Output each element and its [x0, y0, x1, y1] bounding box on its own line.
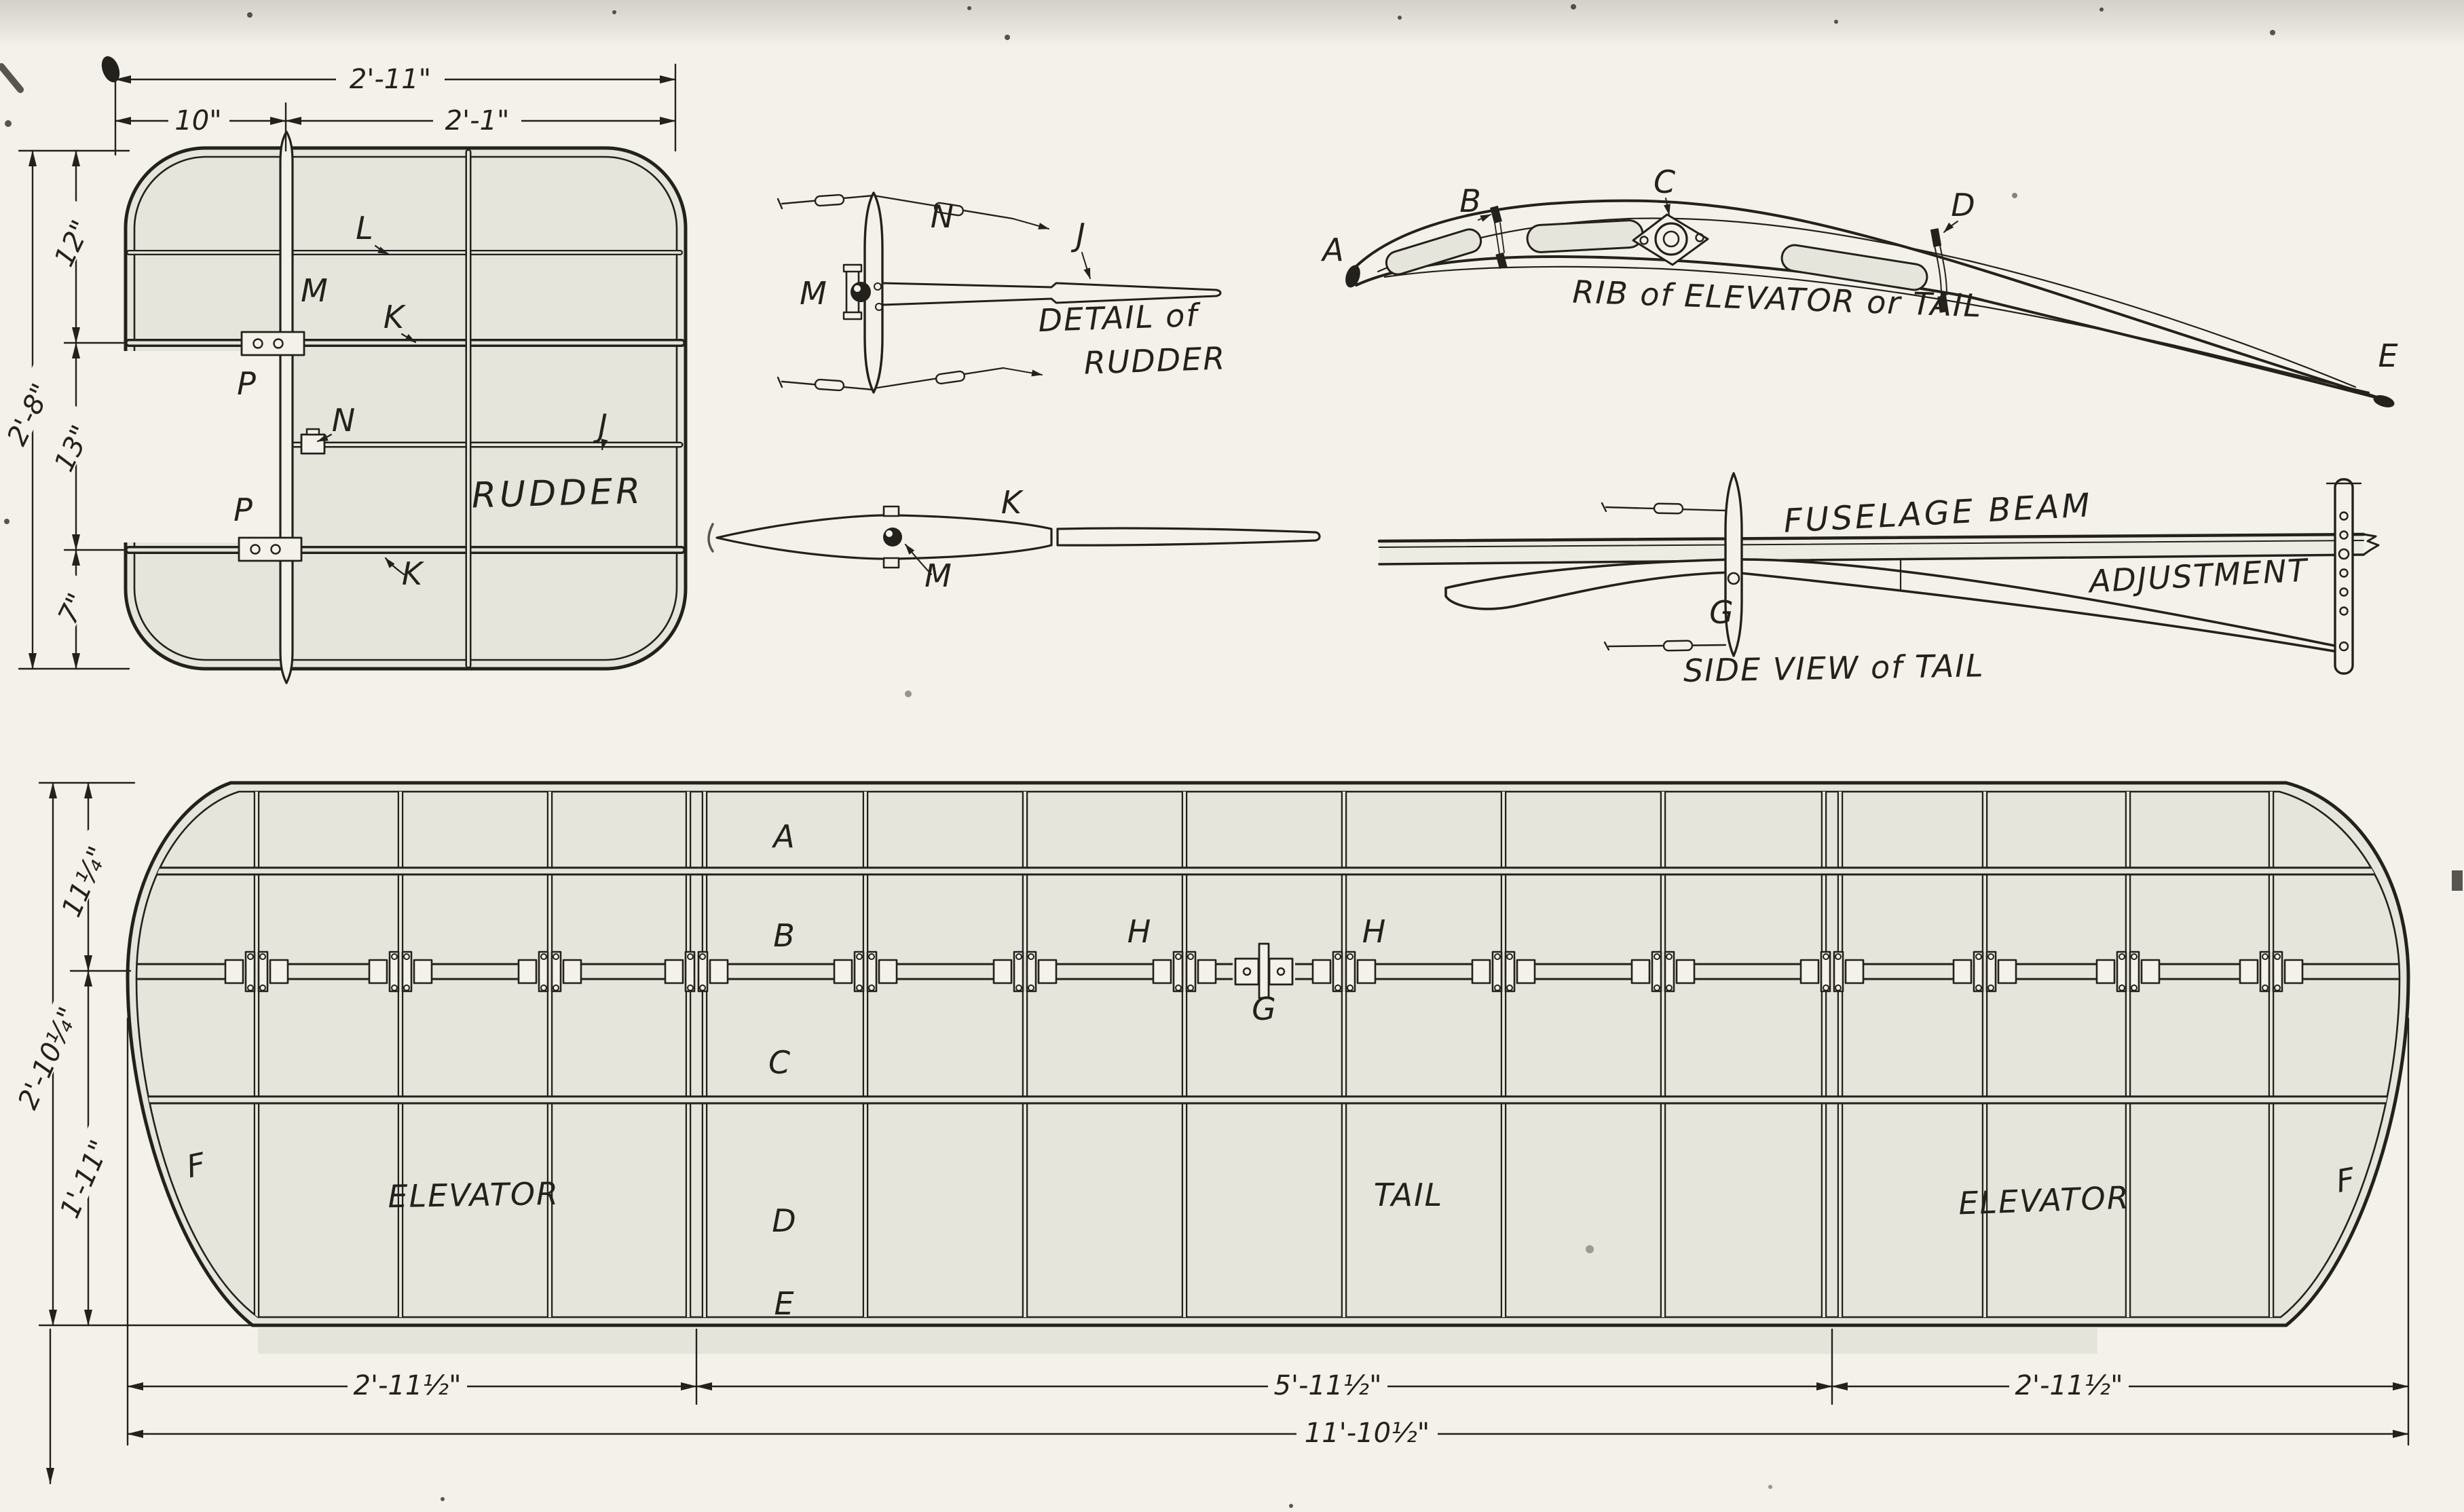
label-p-lower: P — [234, 492, 253, 528]
fitting-block-left — [1235, 959, 1258, 984]
strap-end — [1930, 228, 1941, 247]
dim-bottom-left: 2'-11½" — [354, 1370, 462, 1401]
hinge-plate-tab — [844, 312, 861, 319]
dim-top-left: 10" — [174, 105, 221, 136]
dim-bottom-center: 5'-11½" — [1274, 1370, 1382, 1401]
fitting-tab-bottom — [884, 558, 899, 568]
speck — [441, 1497, 445, 1501]
dim-left-total: 2'-10¼" — [12, 1003, 85, 1114]
beam-break-symbol — [2364, 534, 2378, 555]
rudder-detail: N M J DETAIL of RUDDER — [778, 193, 1227, 392]
stray-mark — [709, 524, 713, 551]
hinge-pin — [851, 282, 871, 302]
station-b: B — [773, 917, 795, 954]
speck — [1289, 1504, 1293, 1508]
spar-pin-highlight — [886, 530, 893, 537]
panel-tail: TAIL — [1374, 1177, 1444, 1213]
dim-bottom-total: 11'-10½" — [1305, 1418, 1430, 1449]
dim-bottom-center-group: 5'-11½" — [1268, 1369, 1387, 1401]
caption-fuselage-beam-group: FUSELAGE BEAM — [1782, 486, 2093, 540]
label-a: A — [1320, 232, 1343, 268]
dim-left-total-group: 2'-10¼" — [3, 988, 91, 1128]
control-horn-cap — [307, 429, 319, 435]
rudder-leading-notch — [121, 351, 280, 542]
speck — [905, 690, 912, 697]
label-m: M — [301, 272, 328, 309]
dim-bottom-right-group: 2'-11½" — [2009, 1369, 2129, 1401]
caption-fuselage-beam: FUSELAGE BEAM — [1782, 486, 2093, 540]
hinge-pin-highlight — [854, 285, 861, 292]
station-c: C — [768, 1044, 790, 1081]
dim-12-group: 12" — [39, 200, 105, 286]
panel-elevator-left: ELEVATOR — [388, 1175, 559, 1215]
leader-j — [1082, 253, 1090, 278]
fitting-center-tab — [1259, 944, 1269, 998]
brace-wire-end — [1003, 368, 1042, 375]
center-fitting-g — [1233, 944, 1295, 998]
hinge-bracket-upper — [242, 332, 304, 355]
label-k-lower: K — [402, 555, 425, 592]
caption-rudder: RUDDER — [1083, 339, 1227, 381]
spar-detail-k: K M — [717, 484, 1320, 594]
spar-pin — [883, 528, 902, 547]
station-a: A — [771, 818, 794, 855]
label-k-upper: K — [384, 299, 407, 335]
speck — [5, 120, 12, 127]
dim-bottom-total-group: 11'-10½" — [1296, 1416, 1438, 1449]
caption-side-view: SIDE VIEW of TAIL — [1683, 647, 1984, 689]
lightening-slot-2 — [1527, 220, 1643, 253]
slot-shape — [1527, 220, 1643, 253]
dim-left-lower: 1'-11" — [54, 1136, 116, 1223]
fitting-tab-top — [884, 506, 899, 516]
speck — [4, 519, 10, 524]
dim-bottom-right: 2'-11½" — [2015, 1370, 2123, 1401]
label-g: G — [1709, 594, 1734, 631]
label-h-right: H — [1362, 913, 1386, 950]
label-j: J — [1070, 217, 1085, 253]
dim-7-group: 7" — [43, 573, 100, 644]
photo-shadow-band — [258, 1328, 2097, 1354]
photo-vignette-top — [0, 0, 2464, 48]
dim-13-group: 13" — [39, 405, 105, 491]
label-c: C — [1654, 164, 1675, 200]
dim-left-upper: 11¼" — [56, 842, 114, 921]
edge-mark — [2452, 870, 2463, 891]
tail-side-view: FUSELAGE BEAM ADJUSTMENT SIDE VIEW of TA… — [1379, 473, 2378, 689]
plan-outline-outer — [128, 783, 2408, 1325]
label-b: B — [1459, 183, 1481, 219]
dim-left-lower-group: 1'-11" — [46, 1122, 122, 1236]
label-m: M — [925, 557, 952, 594]
label-e: E — [2378, 337, 2397, 374]
spar-right-half — [1058, 528, 1320, 545]
rudder-title: RUDDER — [471, 471, 644, 517]
label-d: D — [1951, 187, 1975, 223]
dim-left-upper-group: 11¼" — [48, 830, 119, 933]
strap-d-top — [1930, 228, 1941, 247]
rib-detail: A B C D E RIB of ELEVATOR or TAIL — [1320, 164, 2397, 409]
fitting-block-right — [1269, 959, 1292, 984]
label-k: K — [1001, 484, 1024, 521]
dim-bottom-left-group: 2'-11½" — [348, 1369, 467, 1401]
label-n: N — [931, 198, 954, 235]
hinge-bracket-lower — [239, 538, 301, 561]
label-l: L — [356, 210, 373, 246]
label-g: G — [1252, 991, 1276, 1027]
dim-top-total: 2'-11" — [350, 64, 431, 95]
label-m: M — [800, 275, 827, 312]
caption-adjustment: ADJUSTMENT — [2087, 552, 2311, 600]
tail-elevator-plan: A B C D E H H G ELEVATOR TAIL ELEVATOR F… — [3, 783, 2408, 1483]
dim-top-right: 2'-1" — [445, 105, 510, 136]
rudder-plan: L M K P N J RUDDER P K 2'-11" 10" 2'-1" … — [0, 54, 686, 683]
brace-wire-end — [1013, 219, 1049, 229]
station-d: D — [772, 1202, 796, 1239]
panel-elevator-right: ELEVATOR — [1958, 1179, 2130, 1222]
blueprint-canvas: L M K P N J RUDDER P K 2'-11" 10" 2'-1" … — [0, 0, 2464, 1512]
label-h-left: H — [1127, 913, 1151, 950]
caption-detail-of: DETAIL of — [1038, 297, 1202, 339]
rudder-post — [280, 132, 293, 683]
speck — [1586, 1245, 1594, 1253]
label-p-upper: P — [237, 365, 256, 402]
control-horn-fitting — [301, 435, 324, 454]
caption-adjustment-group: ADJUSTMENT — [2087, 552, 2311, 600]
corner-mark — [1, 67, 20, 90]
label-n: N — [332, 402, 355, 439]
hinge-plate-tab — [844, 265, 861, 272]
speck — [2012, 193, 2017, 198]
speck — [1768, 1485, 1772, 1489]
station-e: E — [774, 1285, 794, 1322]
wire-anchor-tick — [778, 377, 782, 387]
